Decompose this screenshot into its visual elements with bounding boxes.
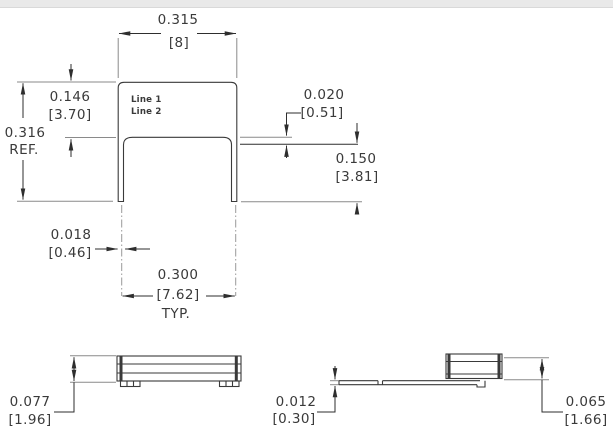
end-view-lead-strip <box>330 381 485 387</box>
dim-body-height-inch-label: 0.146 <box>50 89 91 105</box>
dim-lead-width: 0.018 [0.46] <box>49 227 151 261</box>
side-view-left-foot <box>121 381 141 387</box>
dim-lead-length: 0.150 [3.81] <box>241 123 379 214</box>
dim-side-height-mm-label: [1.96] <box>9 412 52 428</box>
dim-side-height-inch-label: 0.077 <box>10 394 51 410</box>
dim-width-mm-label: [8] <box>169 35 189 51</box>
dimension-drawing-page: Line 1 Line 2 0.315 [8] 0.146 [3.70] 0.3… <box>0 0 613 436</box>
dim-lead-thickness: 0.012 [0.30] <box>273 366 336 427</box>
marking-line2-label: Line 2 <box>131 107 162 117</box>
dim-lead-length-mm-label: [3.81] <box>336 169 379 185</box>
dim-body-height-mm-label: [3.70] <box>49 107 92 123</box>
dim-width-inch-label: 0.315 <box>158 12 199 28</box>
end-view <box>330 354 502 387</box>
dim-lead-length-inch-label: 0.150 <box>336 151 377 167</box>
dim-lead-spacing-inch-label: 0.300 <box>158 267 199 283</box>
front-view: Line 1 Line 2 <box>118 82 237 296</box>
dim-lead-width-inch-label: 0.018 <box>51 227 92 243</box>
dim-width: 0.315 [8] <box>118 12 237 78</box>
dim-overall-height-ref-label: REF. <box>9 142 38 158</box>
dim-seated-height: 0.065 [1.66] <box>504 358 608 428</box>
dim-standoff-inch-label: 0.020 <box>304 87 345 103</box>
dim-lead-spacing-typ-label: TYP. <box>161 306 190 322</box>
page-top-strip <box>0 0 613 7</box>
side-view <box>117 356 241 387</box>
dim-lead-width-mm-label: [0.46] <box>49 245 92 261</box>
package-dimension-drawing: Line 1 Line 2 0.315 [8] 0.146 [3.70] 0.3… <box>0 0 613 436</box>
dim-lead-spacing-mm-label: [7.62] <box>157 287 200 303</box>
dim-lead-thickness-mm-label: [0.30] <box>273 411 316 427</box>
end-view-body <box>446 354 502 379</box>
dim-seated-height-inch-label: 0.065 <box>566 394 607 410</box>
dim-lead-thickness-inch-label: 0.012 <box>276 394 317 410</box>
dim-side-height: 0.077 [1.96] <box>9 356 117 428</box>
dim-overall-height-inch-label: 0.316 <box>5 125 46 141</box>
dim-seated-height-mm-label: [1.66] <box>565 412 608 428</box>
dim-standoff: 0.020 [0.51] <box>240 87 358 158</box>
dim-lead-spacing: 0.300 [7.62] TYP. <box>123 267 235 322</box>
dim-standoff-mm-label: [0.51] <box>301 105 344 121</box>
marking-line1-label: Line 1 <box>131 95 162 105</box>
side-view-right-foot <box>220 381 240 387</box>
side-view-body <box>117 356 241 381</box>
